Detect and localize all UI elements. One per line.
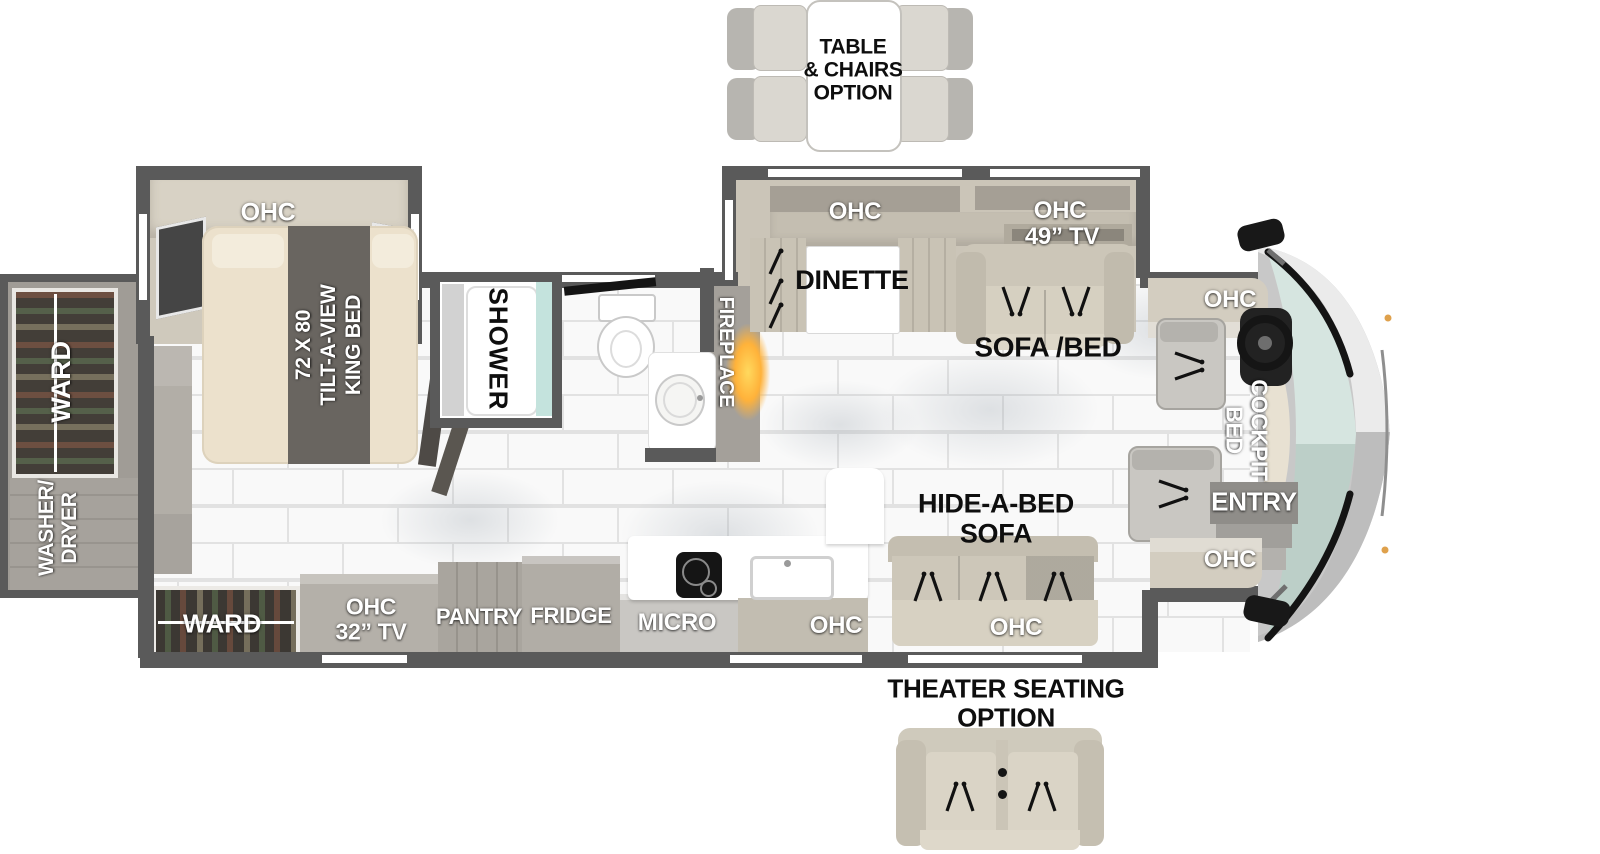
cockpit-bed-label: COCKPIT BED [1221,379,1272,480]
recliner-icon [942,779,978,813]
rear-ward-label: WARD [47,341,77,422]
bedroom-window-pane [156,217,206,320]
sofa-bed-armrest [1104,252,1134,344]
window [139,214,147,300]
recliner-icon [767,247,785,277]
marble-vein [760,380,920,470]
marble-vein [380,470,560,570]
dinette-ohc-label: OHC [829,199,881,225]
burner [700,580,717,597]
cupholder-icon [998,790,1007,799]
shower-glass [536,282,552,416]
table-chairs-option-label: TABLE & CHAIRS OPTION [803,35,902,104]
entry-label: ENTRY [1211,488,1297,517]
recliner-icon [1024,779,1060,813]
theater-front [920,830,1080,850]
tv-size-label: 49” TV [1025,224,1099,250]
marker-light [1382,547,1389,554]
king-bed-label: 72 X 80 TILT-A-VIEW KING BED [291,284,367,405]
rv-floorplan: TABLE & CHAIRS OPTION WARD WASHER/ DRYER [0,0,1600,854]
theater-option-label: THEATER SEATING OPTION [887,674,1124,731]
sofa-bed-label: SOFA /BED [974,333,1121,364]
window [908,655,1082,663]
recliner-icon [998,285,1034,319]
cockpit-ohc-top-label: OHC [1204,287,1256,313]
passenger-seat-back [1132,450,1214,470]
recliner-icon [1040,569,1076,603]
chair [895,5,949,71]
chair [895,76,949,142]
hide-a-bed-label: HIDE-A-BED SOFA [918,489,1074,548]
hide-a-bed-ohc-label: OHC [990,615,1042,641]
bath-wall [645,448,716,462]
fireplace-label: FIREPLACE [715,297,737,408]
recliner-icon [1157,476,1191,512]
recliner-icon [910,569,946,603]
shower-seat [442,284,464,416]
kitchen-ohc-label: OHC [810,613,862,639]
front-cap [1130,180,1430,680]
cockpit-ohc-bottom-label: OHC [1204,547,1256,573]
window [322,655,407,663]
bedroom-slide-top-wall [136,166,422,180]
driver-seat-back [1160,322,1218,342]
shower-label: SHOWER [484,288,513,411]
cupholder-icon [998,768,1007,777]
marker-light [1385,315,1392,322]
washer-dryer-label: WASHER/ DRYER [35,480,81,576]
dinette-label: DINETTE [795,266,908,296]
mirror-icon [1236,217,1287,253]
pantry-label: PANTRY [436,605,522,629]
chair [753,5,807,71]
faucet [784,560,791,567]
recliner-icon [1058,285,1094,319]
theater-console [996,740,1008,838]
kitchen-sink [750,556,834,600]
ohc-32tv-label: OHC 32” TV [335,595,406,646]
bed-pillow [212,234,284,268]
bath-sink-inner [663,382,697,418]
window [730,655,862,663]
bottom-ward-label: WARD [183,610,261,639]
counter-peninsula [826,468,884,544]
fridge-label: FRIDGE [530,604,611,628]
bed-pillow [372,234,414,268]
steering-hub [1258,336,1272,350]
bath-wall [700,268,714,352]
tv-ohc-label: OHC [1034,198,1086,224]
micro-label: MICRO [638,610,717,636]
left-wall [138,336,154,658]
window [768,169,962,177]
bedroom-ohc-label: OHC [241,199,296,227]
sofa-bed-armrest [956,252,986,344]
faucet [697,395,703,401]
recliner-icon [767,301,785,331]
chair [753,76,807,142]
window [725,200,733,280]
recliner-icon [1173,348,1207,384]
recliner-icon [975,569,1011,603]
toilet-bowl-inner [610,330,642,368]
window [990,169,1140,177]
